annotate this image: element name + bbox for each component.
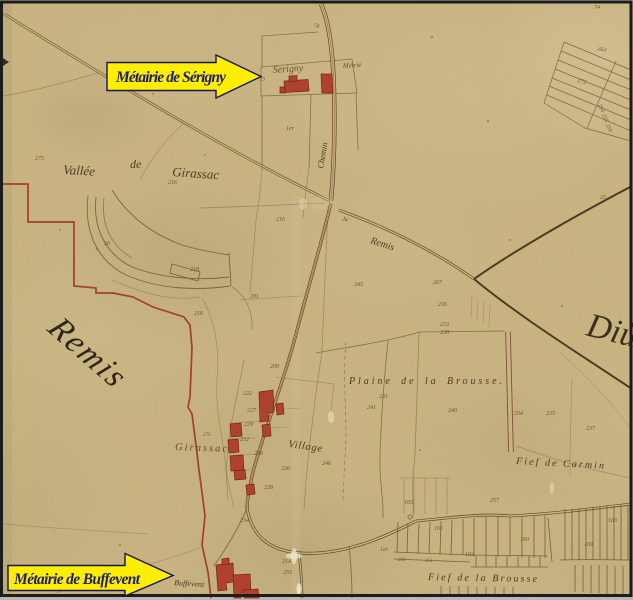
svg-text:241: 241 [367,404,376,411]
svg-text:Métrie: Métrie [342,61,362,70]
svg-text:214: 214 [282,558,291,565]
svg-text:234: 234 [240,517,249,524]
svg-text:236: 236 [438,302,447,308]
svg-text:201: 201 [250,294,259,300]
svg-text:Fief de la Brousse: Fief de la Brousse [427,572,538,585]
svg-text:246: 246 [322,460,331,467]
svg-text:236: 236 [254,451,263,457]
svg-text:Métairie de Sérigny: Métairie de Sérigny [115,69,226,86]
svg-text:251: 251 [425,559,433,564]
svg-text:163: 163 [608,518,617,524]
svg-text:250: 250 [398,558,406,563]
svg-text:161: 161 [434,526,443,532]
svg-text:238: 238 [440,330,449,336]
svg-text:Serigny: Serigny [272,63,304,76]
svg-text:233: 233 [440,322,449,328]
svg-text:232: 232 [240,437,249,443]
svg-text:162: 162 [465,552,474,558]
svg-text:216: 216 [168,180,177,186]
svg-text:245: 245 [354,281,363,288]
svg-text:74: 74 [594,4,600,11]
svg-text:209: 209 [270,364,279,370]
svg-text:26: 26 [104,241,110,247]
svg-text:216: 216 [194,311,203,317]
svg-text:235: 235 [546,411,555,417]
svg-text:257: 257 [490,498,500,504]
svg-text:169: 169 [584,542,593,548]
svg-text:254: 254 [514,410,523,417]
svg-text:240: 240 [448,407,457,414]
svg-text:222: 222 [243,391,252,397]
svg-text:Métairie de Buffevent: Métairie de Buffevent [13,571,141,588]
svg-text:Plaine de la Brousse.: Plaine de la Brousse. [348,376,502,387]
svg-text:227: 227 [247,408,257,414]
svg-text:de: de [130,157,142,171]
svg-text:253: 253 [283,570,292,576]
svg-text:231: 231 [379,394,388,400]
svg-text:226: 226 [281,466,290,472]
svg-text:275: 275 [35,156,44,162]
svg-text:25: 25 [600,195,606,201]
svg-text:275: 275 [203,433,211,438]
svg-text:1er: 1er [286,126,295,132]
svg-text:229: 229 [244,422,253,428]
svg-text:1er: 1er [380,547,389,553]
svg-text:73: 73 [259,77,265,83]
svg-text:237: 237 [586,426,596,432]
svg-text:160: 160 [520,537,529,543]
svg-text:238: 238 [264,485,273,491]
svg-text:Vallée: Vallée [63,162,96,179]
svg-text:216: 216 [276,217,285,223]
svg-text:165: 165 [404,500,413,506]
svg-text:267: 267 [433,280,443,286]
svg-text:218: 218 [190,267,199,273]
